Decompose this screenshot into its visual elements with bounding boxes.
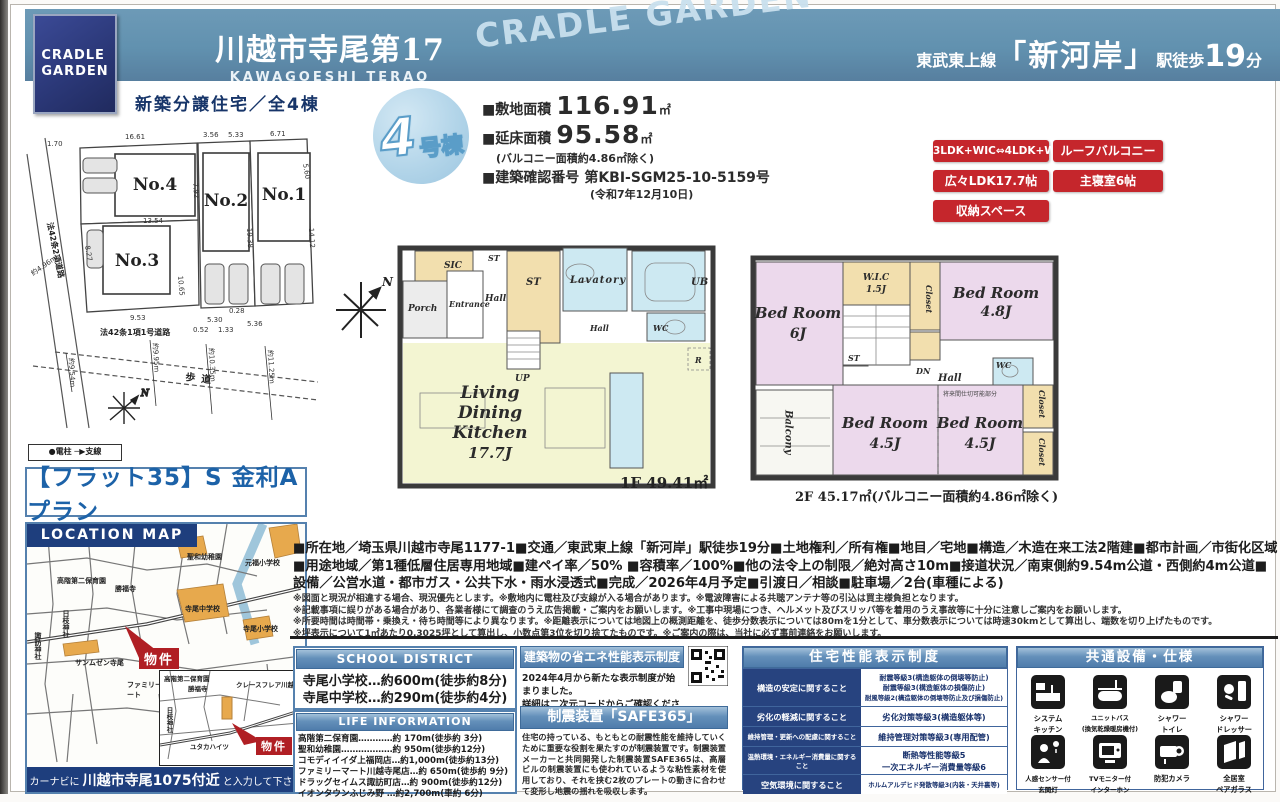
balcony-note: (バルコニー面積約4.86㎡除く): [496, 150, 922, 166]
perf-label-structure: 構造の安定に関すること: [743, 669, 861, 706]
room-ldk-dining: Dining: [457, 403, 522, 423]
performance-header: 住宅性能表示制度: [743, 647, 1007, 668]
room-ub: UB: [691, 277, 708, 288]
seismic-body: 住宅の持っている、もともとの耐震性能を維持していくために重要な役割を果たすのが制…: [522, 732, 726, 797]
road-label-2: 法42条1項1号道路: [100, 327, 171, 337]
station-walk: 駅徒歩: [1156, 51, 1204, 70]
note-line-3: ※所要時間は時間帯・乗換え・待ち時間等により異なります。※距離表示については地図…: [293, 617, 1279, 629]
room-ldk-living: Living: [460, 383, 520, 403]
equipment-header: 共通設備・仕様: [1017, 647, 1263, 668]
school-district-header: SCHOOL DISTRICT: [296, 649, 514, 669]
room-br2-size: 4.8J: [981, 304, 1013, 320]
property-details: ■所在地／埼玉県川越市寺尾1177-1■交通／東武東上線「新河岸」駅徒歩19分■…: [293, 540, 1279, 593]
inset-label-hie: 日枝神社: [164, 707, 174, 733]
perf-value-deterioration: 劣化対策等級3(構造躯体等): [861, 707, 1007, 726]
dim-5-30: 5.30: [207, 316, 223, 324]
life-row-3: コモディイイダ上福岡店…約1,000m(徒歩約13分): [298, 756, 512, 767]
map-label-seiwa: 聖和幼稚園: [187, 552, 222, 562]
north-label: N: [140, 389, 150, 399]
feature-badge-wide-ldk: 広々LDK17.7帖: [933, 170, 1049, 192]
unit-suffix: 号棟: [418, 127, 465, 163]
note-line-2: ※記載事項に誤りがある場合があり、各業者様にて調査のうえ広告掲載・ご案内をお願い…: [293, 606, 1279, 618]
lot-no2-label: No.2: [204, 191, 248, 211]
life-information-rows: 高階第二保育園…………約 170m(徒歩約 3分) 聖和幼稚園………………約 9…: [295, 732, 515, 802]
equipment-item-interphone: TVモニター付 インターホン: [1081, 735, 1139, 794]
equipment-caption: キッチン: [1019, 726, 1077, 735]
inset-label-takashina: 高階第二保育園: [164, 673, 210, 683]
performance-row-deterioration: 劣化の軽減に関すること 劣化対策等級3(構造躯体等): [743, 706, 1007, 726]
lot-no1-label: No.1: [262, 185, 306, 205]
perf-thermal-line1: 断熱等性能等級5: [902, 749, 965, 761]
room-st1: ST: [488, 253, 501, 263]
equipment-caption: 防犯カメラ: [1143, 775, 1201, 784]
equipment-item-dresser: シャワー ドレッサー: [1205, 675, 1263, 734]
dim-19-38: 19.38: [245, 228, 254, 248]
perf-label-thermal: 温熱環境・エネルギー消費量に関すること: [743, 747, 861, 774]
plan2f-area-label: 2F 45.17㎡(バルコニー面積約4.86㎡除く): [795, 486, 1058, 505]
room-closet-1: Closet: [924, 285, 934, 313]
confirmation-date: (令和7年12月10日): [590, 186, 922, 202]
perf-value-air: ホルムアルデヒド発散等級3(内装・天井裏等): [861, 775, 1007, 794]
location-map: LOCATION MAP 聖和幼稚園 元福小学校 高階第二保育園 勝福寺 日枝神…: [25, 522, 307, 794]
land-area-value: 116.91: [556, 91, 658, 120]
feature-badge-ldk: 3LDK+WIC⇔4LDK+WIC: [933, 140, 1049, 162]
cradle-garden-logo: CRADLE GARDEN: [33, 14, 117, 114]
dim-0-28: 0.28: [229, 307, 245, 315]
dim-6-71: 6.71: [270, 130, 286, 138]
note-line-1: ※図面と現況が相違する場合、現況優先とします。※敷地内に電柱及び支線が入る場合が…: [293, 594, 1279, 606]
property-flag-2: 物件: [256, 737, 292, 755]
perf-air-line1: ホルムアルデヒド発散等級3(内装・天井裏等): [868, 780, 1000, 789]
life-row-5: ドラッグセイムス諏訪町店…約 900m(徒歩約12分): [298, 778, 512, 789]
room-br4-size: 4.5J: [965, 436, 997, 452]
dim-5-36: 5.36: [247, 320, 263, 328]
station-minutes: 19: [1204, 39, 1246, 74]
unit-number: 4: [377, 107, 419, 170]
station-name: 新河岸: [1028, 39, 1124, 74]
life-row-2: 聖和幼稚園………………約 950m(徒歩約12分): [298, 745, 512, 756]
room-wc-2f: WC: [996, 360, 1012, 370]
page-title-roman: KAWAGOESHI TERAO: [175, 70, 485, 85]
map-label-suwa: 諏訪神社: [33, 632, 43, 660]
dim-1-70: 1.70: [47, 140, 63, 148]
room-sic: SIC: [444, 261, 463, 271]
divider-rule: [290, 636, 1278, 639]
school-row-junior-high: 寺尾中学校…約290m(徒歩約4分): [299, 690, 511, 707]
floor-area-row: ■延床面積 95.58㎡: [482, 121, 922, 150]
bracket-open: 「: [996, 39, 1028, 74]
room-entrance: Entrance: [448, 299, 490, 309]
energy-seismic-box: 建築物の省エネ性能表示制度 2024年4月から新たな表示制度が始まりました。 詳…: [520, 646, 728, 790]
performance-row-air: 空気環境に関すること ホルムアルデヒド発散等級3(内装・天井裏等): [743, 774, 1007, 794]
room-hall-1f: Hall: [484, 294, 507, 304]
room-lavatory: Lavatory: [569, 275, 626, 286]
map-label-hie: 日枝神社: [61, 610, 71, 638]
subheader-label: 新築分譲住宅／全4棟: [135, 90, 320, 115]
scan-edge-artifact: [0, 0, 8, 794]
dim-0-52: 0.52: [193, 326, 209, 334]
perf-structure-line1: 耐震等級3(構造躯体の倒壊等防止): [879, 673, 988, 683]
dim-7-92: 7.92: [191, 182, 200, 198]
equipment-caption: シャワー: [1205, 715, 1263, 724]
inset-label-shofukuji: 勝福寺: [188, 683, 208, 693]
land-area-label: ■敷地面積: [482, 102, 551, 118]
equipment-caption: インターホン: [1081, 786, 1139, 795]
feature-badge-roof-balcony: ルーフバルコニー: [1053, 140, 1163, 162]
compass-icon: N: [328, 272, 398, 352]
equipment-item-sensor-light: 人感センサー付 玄関灯: [1019, 735, 1077, 794]
spec-block: ■敷地面積 116.91㎡ ■延床面積 95.58㎡ (バルコニー面積約4.86…: [482, 92, 922, 202]
map-label-terao-es: 寺尾小学校: [243, 624, 278, 634]
site-compass-icon: N: [108, 389, 150, 424]
location-map-header: LOCATION MAP: [27, 524, 197, 547]
room-br1-name: Bed Room: [754, 304, 841, 322]
room-wc-1f: WC: [653, 323, 669, 333]
perf-structure-line3: 耐風等級2(構造躯体の倒壊等防止及び損傷防止): [865, 693, 1003, 702]
equipment-caption: ドレッサー: [1205, 726, 1263, 735]
room-porch: Porch: [407, 304, 437, 314]
car-navi-bar: カーナビに 川越市寺尾1075付近 と入力して下さい: [27, 767, 305, 792]
dim-3-56: 3.56: [203, 131, 219, 139]
station-access: 東武東上線「新河岸」駅徒歩19分: [916, 31, 1262, 75]
equipment-item-toilet: シャワー トイレ: [1143, 675, 1201, 734]
land-area-unit: ㎡: [659, 103, 671, 117]
equipment-item-kitchen: システム キッチン: [1019, 675, 1077, 734]
performance-row-thermal: 温熱環境・エネルギー消費量に関すること 断熱等性能等級5 一次エネルギー消費量等…: [743, 746, 1007, 774]
room-st2: ST: [526, 277, 542, 288]
equipment-caption: 玄関灯: [1019, 786, 1077, 795]
room-refrigerator: R: [694, 355, 702, 365]
room-wic-size: 1.5J: [866, 285, 887, 295]
land-area-row: ■敷地面積 116.91㎡: [482, 92, 922, 121]
room-closet-2: Closet: [1037, 390, 1047, 418]
floor-area-value: 95.58: [556, 120, 640, 149]
map-label-terao-jhs: 寺尾中学校: [185, 604, 220, 614]
equipment-item-bath: ユニットバス (換気乾燥暖房機付): [1081, 675, 1139, 734]
equipment-caption: システム: [1019, 715, 1077, 724]
logo-line2: GARDEN: [41, 64, 108, 80]
inset-label-crest: クレースフレア川越: [236, 679, 294, 689]
pair-glass-icon: [1217, 735, 1251, 769]
dim-1-33: 1.33: [218, 326, 234, 334]
perf-label-deterioration: 劣化の軽減に関すること: [743, 707, 861, 726]
map-label-takashina: 高階第二保育園: [57, 576, 106, 586]
flat35-banner: 【フラット35】S 金利Aプラン: [25, 467, 307, 517]
equipment-box: 共通設備・仕様 システム キッチン ユニットバス (換気乾燥暖房機付) シャワー…: [1016, 646, 1264, 790]
perf-thermal-line2: 一次エネルギー消費量等級6: [882, 761, 986, 773]
station-line: 東武東上線: [916, 51, 996, 70]
tv-interphone-icon: [1093, 735, 1127, 769]
brand-watermark: CRADLE GARDEN: [473, 0, 776, 56]
life-row-4: ファミリーマート川越寺尾店…約 650m(徒歩約 9分): [298, 767, 512, 778]
map-label-shofukuji: 勝福寺: [115, 584, 136, 594]
room-closet-3: Closet: [1037, 438, 1047, 466]
perf-maintenance-line1: 維持管理対策等級3(専用配管): [878, 731, 989, 743]
security-camera-icon: [1155, 735, 1189, 769]
energy-body-line1: 2024年4月から新たな表示制度が始まりました。: [522, 672, 684, 698]
equipment-caption: 全居室: [1205, 775, 1263, 784]
room-ldk-kitchen: Kitchen: [452, 423, 528, 443]
room-br1-size: 6J: [790, 326, 808, 342]
performance-row-maintenance: 維持管理・更新への配慮に関すること 維持管理対策等級3(専用配管): [743, 726, 1007, 746]
dim-14-12: 14.12: [307, 228, 316, 248]
navi-pre: カーナビに: [29, 777, 82, 788]
perf-structure-line2: 耐震等級3(構造躯体の損傷防止): [883, 683, 985, 693]
room-br4-name: Bed Room: [936, 414, 1023, 432]
equipment-item-pair-glass: 全居室 ペアガラス: [1205, 735, 1263, 794]
perf-value-maintenance: 維持管理対策等級3(専用配管): [861, 727, 1007, 746]
room-dn: DN: [915, 366, 931, 376]
lot-no3-label: No.3: [115, 251, 159, 271]
bracket-close: 」: [1124, 39, 1156, 74]
room-wic: W.I.C: [863, 273, 890, 283]
room-br3-name: Bed Room: [841, 414, 928, 432]
life-information-header: LIFE INFORMATION: [296, 713, 514, 731]
life-row-1: 高階第二保育園…………約 170m(徒歩約 3分): [298, 734, 512, 745]
seismic-header: 制震装置「SAFE365」: [520, 706, 728, 729]
floor-plan-1f: SIC Porch Entrance Hall ST ST Lavatory U…: [395, 243, 720, 493]
dimension-arrows: [66, 340, 272, 420]
confirmation-number: 第KBI-SGM25-10-5159号: [584, 170, 770, 186]
inset-label-yutaka: ユタカハイツ: [190, 741, 229, 751]
equipment-caption: TVモニター付: [1081, 775, 1139, 784]
fine-print: ※図面と現況が相違する場合、現況優先とします。※敷地内に電柱及び支線が入る場合が…: [293, 594, 1279, 640]
shower-dresser-icon: [1217, 675, 1251, 709]
dim-13-54: 13.54: [143, 217, 164, 225]
room-br3-size: 4.5J: [870, 436, 902, 452]
road-label-1: 法42条2項道路: [45, 221, 67, 280]
map-label-motofuku: 元福小学校: [245, 558, 280, 568]
room-br2-name: Bed Room: [952, 284, 1039, 302]
qr-code-icon: [688, 646, 728, 686]
energy-header: 建築物の省エネ性能表示制度: [520, 646, 684, 668]
perf-label-maintenance: 維持管理・更新への配慮に関すること: [743, 727, 861, 746]
system-kitchen-icon: [1031, 675, 1065, 709]
room-balcony: Balcony: [783, 409, 794, 456]
plan1f-area-label: 1F 49.41㎡: [620, 472, 708, 493]
school-row-elementary: 寺尾小学校…約600m(徒歩約8分): [299, 673, 511, 690]
unit-bath-icon: [1093, 675, 1127, 709]
header-banner: CRADLE GARDEN 川越市寺尾第17 KAWAGOESHI TERAO …: [25, 9, 1280, 81]
page-title-block: 川越市寺尾第17 KAWAGOESHI TERAO: [175, 25, 485, 85]
equipment-caption: ユニットバス: [1081, 715, 1139, 724]
future-partition-note: 将来間仕切可能部分: [943, 390, 997, 398]
page-title: 川越市寺尾第17: [175, 25, 485, 69]
logo-text: CRADLE GARDEN: [41, 48, 108, 81]
floor-area-unit: ㎡: [640, 132, 652, 146]
dim-16-61: 16.61: [125, 133, 145, 141]
perf-value-thermal: 断熱等性能等級5 一次エネルギー消費量等級6: [861, 747, 1007, 774]
feature-badge-master-bedroom: 主寝室6帖: [1053, 170, 1163, 192]
confirmation-row: ■建築確認番号 第KBI-SGM25-10-5159号: [482, 168, 922, 186]
life-information-box: LIFE INFORMATION 高階第二保育園…………約 170m(徒歩約 3…: [293, 710, 517, 794]
equipment-caption: (換気乾燥暖房機付): [1081, 726, 1139, 735]
dim-9-53: 9.53: [130, 314, 146, 322]
map-inset: 高階第二保育園 勝福寺 日枝神社 クレースフレア川越 ユタカハイツ 物件: [159, 670, 303, 766]
property-flag-1: 物件: [139, 648, 179, 669]
map-label-sun: サンムゼン寺尾: [75, 658, 124, 668]
sensor-light-icon: [1031, 735, 1065, 769]
equipment-caption: 人感センサー付: [1019, 775, 1077, 784]
dim-road-w5: 約11.25m: [266, 350, 277, 384]
shower-toilet-icon: [1155, 675, 1189, 709]
equipment-item-camera: 防犯カメラ: [1143, 735, 1201, 786]
room-ldk-size: 17.7J: [468, 444, 513, 462]
floor-plan-2f: Bed Room 6J Bed Room 4.8J Bed Room 4.5J …: [748, 250, 1063, 482]
school-district-rows: 寺尾小学校…約600m(徒歩約8分) 寺尾中学校…約290m(徒歩約4分): [295, 670, 515, 710]
floor-area-label: ■延床面積: [482, 131, 551, 147]
navi-address: 川越市寺尾1075付近: [83, 773, 220, 789]
life-row-6: イオンタウンふじみ野 …約2,700m(車約 6分): [298, 789, 512, 800]
room-hall2-1f: Hall: [589, 323, 609, 333]
room-st-2f: ST: [848, 353, 861, 363]
perf-deterioration-line1: 劣化対策等級3(構造躯体等): [882, 711, 985, 723]
equipment-caption: ペアガラス: [1205, 786, 1263, 795]
lot-no4-label: No.4: [133, 175, 177, 195]
perf-value-structure: 耐震等級3(構造躯体の倒壊等防止) 耐震等級3(構造躯体の損傷防止) 耐風等級2…: [861, 669, 1007, 706]
station-minutes-unit: 分: [1246, 51, 1262, 70]
room-hall-2f: Hall: [937, 373, 962, 384]
dim-5-33: 5.33: [228, 131, 244, 139]
logo-line1: CRADLE: [41, 48, 108, 64]
feature-badge-storage: 収納スペース: [933, 200, 1049, 222]
navi-post: と入力して下さい: [220, 777, 303, 788]
dim-road-w2: 約9.54m: [67, 358, 78, 388]
compass-north-label: N: [381, 275, 394, 289]
perf-label-air: 空気環境に関すること: [743, 775, 861, 794]
performance-box: 住宅性能表示制度 構造の安定に関すること 耐震等級3(構造躯体の倒壊等防止) 耐…: [742, 646, 1008, 790]
equipment-caption: シャワー: [1143, 715, 1201, 724]
school-district-box: SCHOOL DISTRICT 寺尾小学校…約600m(徒歩約8分) 寺尾中学校…: [293, 646, 517, 710]
site-plan: No.1 No.2 No.3 No.4 1.70 16.61 3.56 5.33…: [25, 128, 320, 434]
confirmation-label: ■建築確認番号: [482, 170, 579, 186]
equipment-caption: トイレ: [1143, 726, 1201, 735]
performance-row-structure: 構造の安定に関すること 耐震等級3(構造躯体の倒壊等防止) 耐震等級3(構造躯体…: [743, 668, 1007, 706]
